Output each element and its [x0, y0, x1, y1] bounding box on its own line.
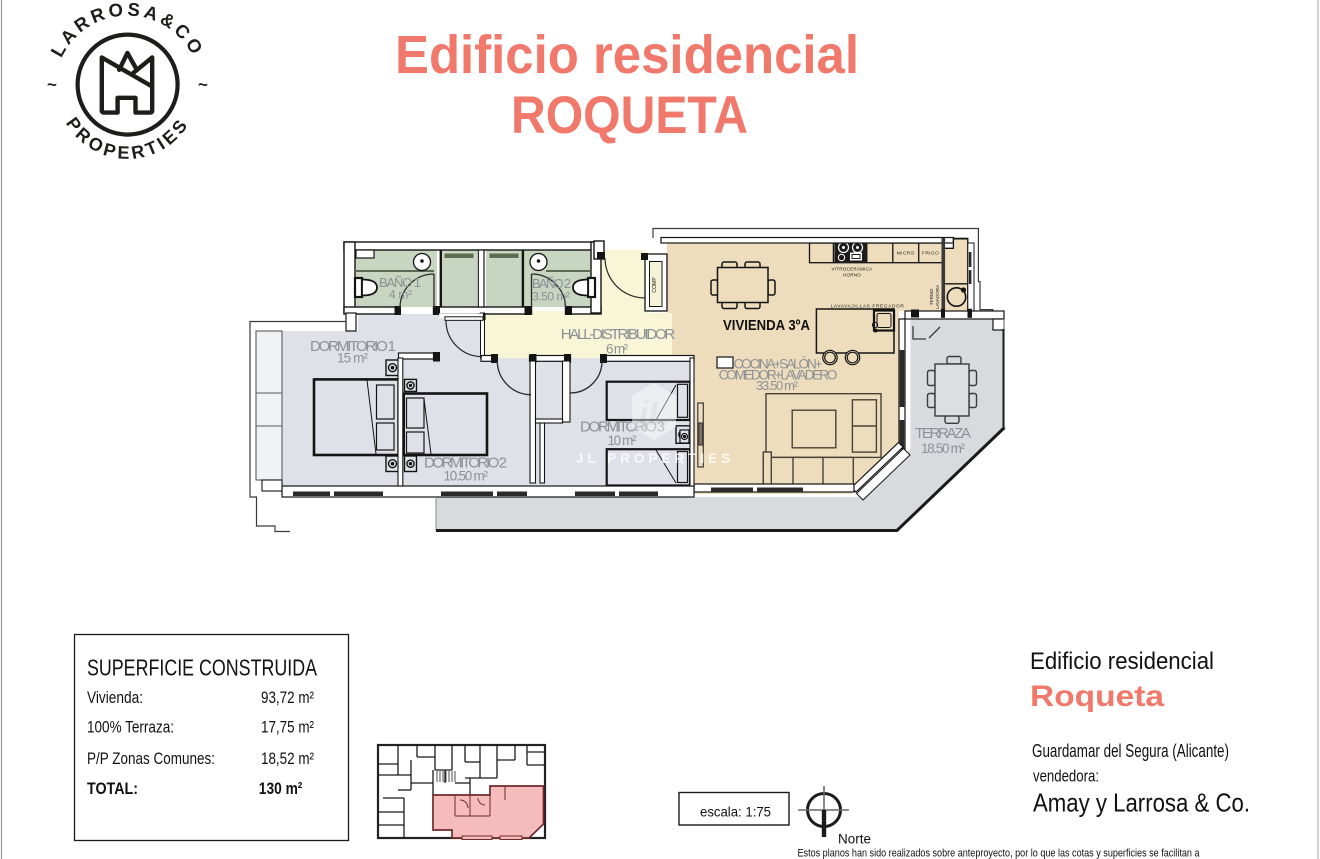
- svg-text:COMP: COMP: [652, 277, 658, 293]
- svg-text:P/P Zonas Comunes:: P/P Zonas Comunes:: [87, 749, 215, 768]
- svg-text:Roqueta: Roqueta: [1030, 680, 1164, 713]
- svg-text:SUPERFICIE CONSTRUIDA: SUPERFICIE CONSTRUIDA: [87, 655, 318, 681]
- svg-text:VIVIENDA 3ºA: VIVIENDA 3ºA: [723, 317, 810, 334]
- svg-text:HALL-DISTRIBUIDOR: HALL-DISTRIBUIDOR: [561, 326, 676, 343]
- svg-text:6 m²: 6 m²: [606, 342, 629, 357]
- svg-text:VITROCERÁMICA: VITROCERÁMICA: [832, 266, 874, 272]
- svg-text:130 m²: 130 m²: [259, 779, 303, 798]
- svg-text:17,75 m²: 17,75 m²: [261, 718, 314, 737]
- svg-text:15 m²: 15 m²: [337, 351, 369, 366]
- svg-text:JL PROPERTIES: JL PROPERTIES: [576, 451, 734, 466]
- svg-text:Vivienda:: Vivienda:: [87, 688, 143, 707]
- svg-text:~: ~: [47, 75, 57, 94]
- svg-text:Estos planos han sido realizad: Estos planos han sido realizados sobre a…: [798, 848, 1201, 859]
- svg-text:Edificio residencial: Edificio residencial: [1030, 648, 1214, 675]
- svg-text:escala: 1:75: escala: 1:75: [700, 804, 771, 820]
- svg-text:4 m²: 4 m²: [389, 288, 412, 302]
- svg-text:TERRAZA: TERRAZA: [915, 425, 971, 442]
- svg-text:10.50 m²: 10.50 m²: [443, 469, 488, 484]
- svg-text:Edificio residencial: Edificio residencial: [395, 25, 859, 85]
- svg-text:18,52 m²: 18,52 m²: [261, 749, 314, 768]
- svg-text:HORNO: HORNO: [843, 273, 861, 278]
- svg-text:LAVADORA: LAVADORA: [935, 284, 940, 309]
- svg-text:93,72 m²: 93,72 m²: [261, 688, 314, 707]
- svg-text:Guardamar del Segura (Alicante: Guardamar del Segura (Alicante): [1032, 741, 1229, 761]
- svg-text:TERMO: TERMO: [929, 288, 934, 305]
- svg-text:33.50 m²: 33.50 m²: [756, 378, 799, 393]
- svg-text:Norte: Norte: [838, 832, 871, 847]
- svg-text:ROQUETA: ROQUETA: [511, 86, 748, 145]
- svg-text:100% Terraza:: 100% Terraza:: [87, 718, 174, 737]
- svg-text:~: ~: [198, 75, 208, 94]
- svg-text:LAVAVAJILLAS FREGADOR: LAVAVAJILLAS FREGADOR: [831, 304, 905, 310]
- svg-text:MICRO: MICRO: [897, 251, 915, 257]
- svg-text:18.50 m²: 18.50 m²: [921, 441, 966, 456]
- svg-text:TOTAL:: TOTAL:: [87, 779, 138, 798]
- svg-text:FRIGO: FRIGO: [922, 251, 939, 257]
- svg-text:3.50 m²: 3.50 m²: [532, 289, 570, 303]
- svg-text:vendedora:: vendedora:: [1033, 767, 1099, 786]
- svg-text:Amay y Larrosa & Co.: Amay y Larrosa & Co.: [1033, 788, 1250, 818]
- svg-text:jL: jL: [635, 395, 669, 433]
- svg-text:10 m²: 10 m²: [608, 433, 638, 448]
